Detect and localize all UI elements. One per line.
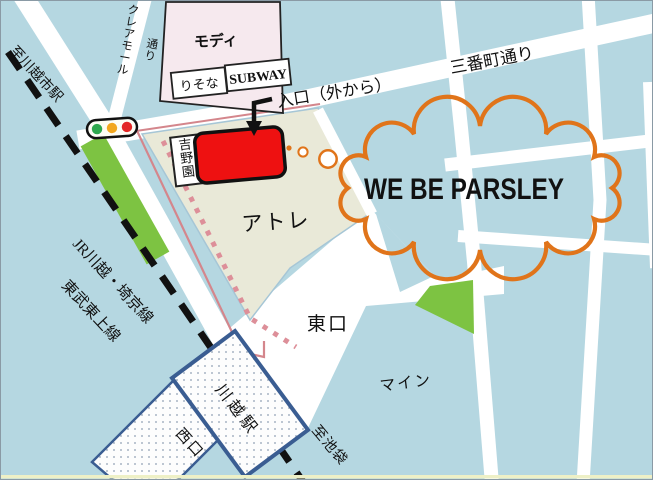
atre-label: アトレ <box>241 208 312 237</box>
shop-name-label: WE BE PARSLEY <box>364 173 564 206</box>
access-map: りそな SUBWAY モディ 吉野園 入口（外から） WE BE PARSLEY… <box>0 0 653 480</box>
bottom-strip <box>0 475 653 479</box>
tail-dot-2 <box>298 147 307 156</box>
map-canvas: りそな SUBWAY モディ 吉野園 入口（外から） WE BE PARSLEY… <box>0 0 653 480</box>
risona-box: りそな <box>171 67 227 99</box>
subway-box: SUBWAY <box>225 59 291 92</box>
east-exit-label: 東口 <box>307 313 349 335</box>
tail-dot-1 <box>286 145 291 150</box>
traffic-light-icon <box>86 117 137 138</box>
tail-dot-3 <box>319 150 336 167</box>
modi-label: モディ <box>194 31 239 51</box>
destination-building <box>194 126 286 183</box>
